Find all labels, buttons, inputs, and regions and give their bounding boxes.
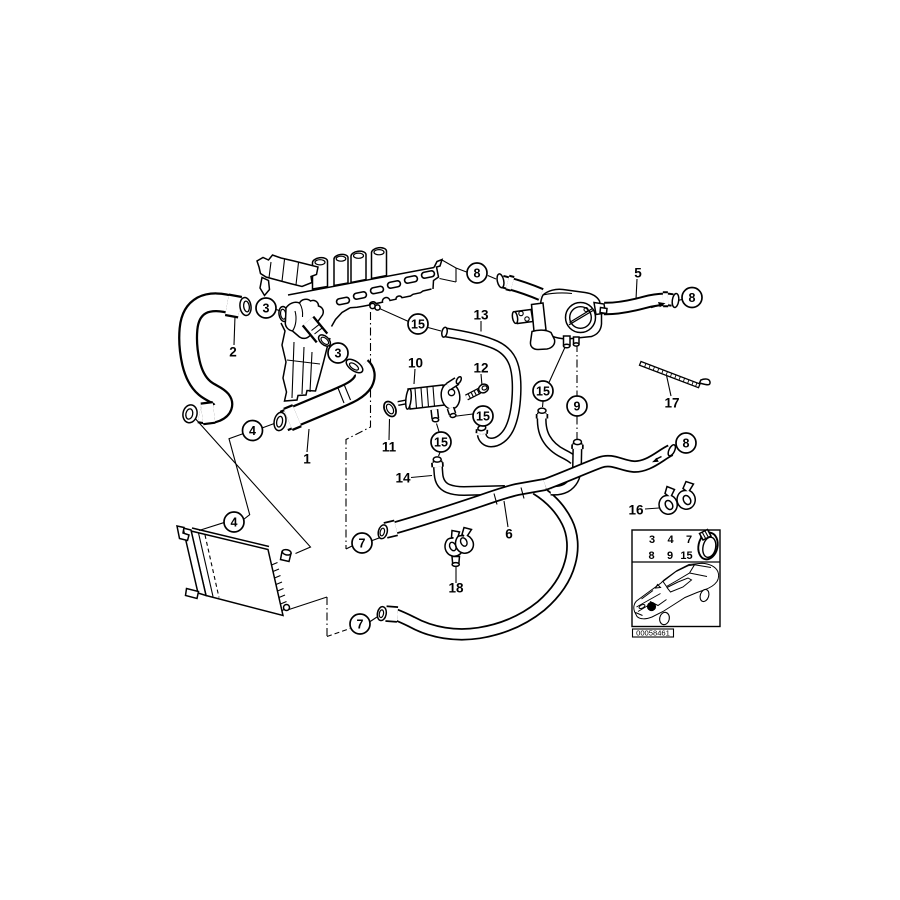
svg-text:9: 9 [574, 400, 581, 414]
svg-text:1: 1 [303, 452, 311, 467]
svg-text:8: 8 [474, 267, 481, 281]
svg-text:00058461: 00058461 [636, 629, 670, 638]
svg-text:7: 7 [359, 537, 366, 551]
svg-text:8: 8 [683, 437, 690, 451]
svg-text:3: 3 [263, 302, 270, 316]
svg-text:11: 11 [382, 440, 397, 455]
svg-text:4: 4 [667, 534, 674, 546]
svg-text:8: 8 [648, 550, 654, 562]
svg-text:15: 15 [536, 385, 550, 399]
svg-text:7: 7 [357, 618, 364, 632]
svg-text:4: 4 [249, 424, 256, 438]
svg-text:9: 9 [667, 550, 673, 562]
svg-text:12: 12 [473, 361, 488, 376]
svg-text:18: 18 [448, 581, 464, 596]
svg-text:2: 2 [229, 345, 237, 360]
svg-text:15: 15 [680, 550, 692, 562]
svg-text:7: 7 [686, 534, 692, 546]
svg-text:6: 6 [505, 527, 513, 542]
svg-text:14: 14 [395, 471, 411, 486]
svg-text:13: 13 [473, 308, 489, 323]
svg-text:5: 5 [634, 266, 642, 281]
svg-text:17: 17 [664, 396, 679, 411]
svg-text:15: 15 [476, 410, 490, 424]
svg-text:4: 4 [231, 516, 238, 530]
svg-text:3: 3 [649, 534, 655, 546]
svg-text:8: 8 [689, 291, 696, 305]
svg-text:16: 16 [628, 503, 644, 518]
svg-text:10: 10 [408, 356, 423, 371]
svg-text:3: 3 [335, 347, 342, 361]
svg-text:15: 15 [434, 436, 448, 450]
svg-text:15: 15 [411, 318, 425, 332]
